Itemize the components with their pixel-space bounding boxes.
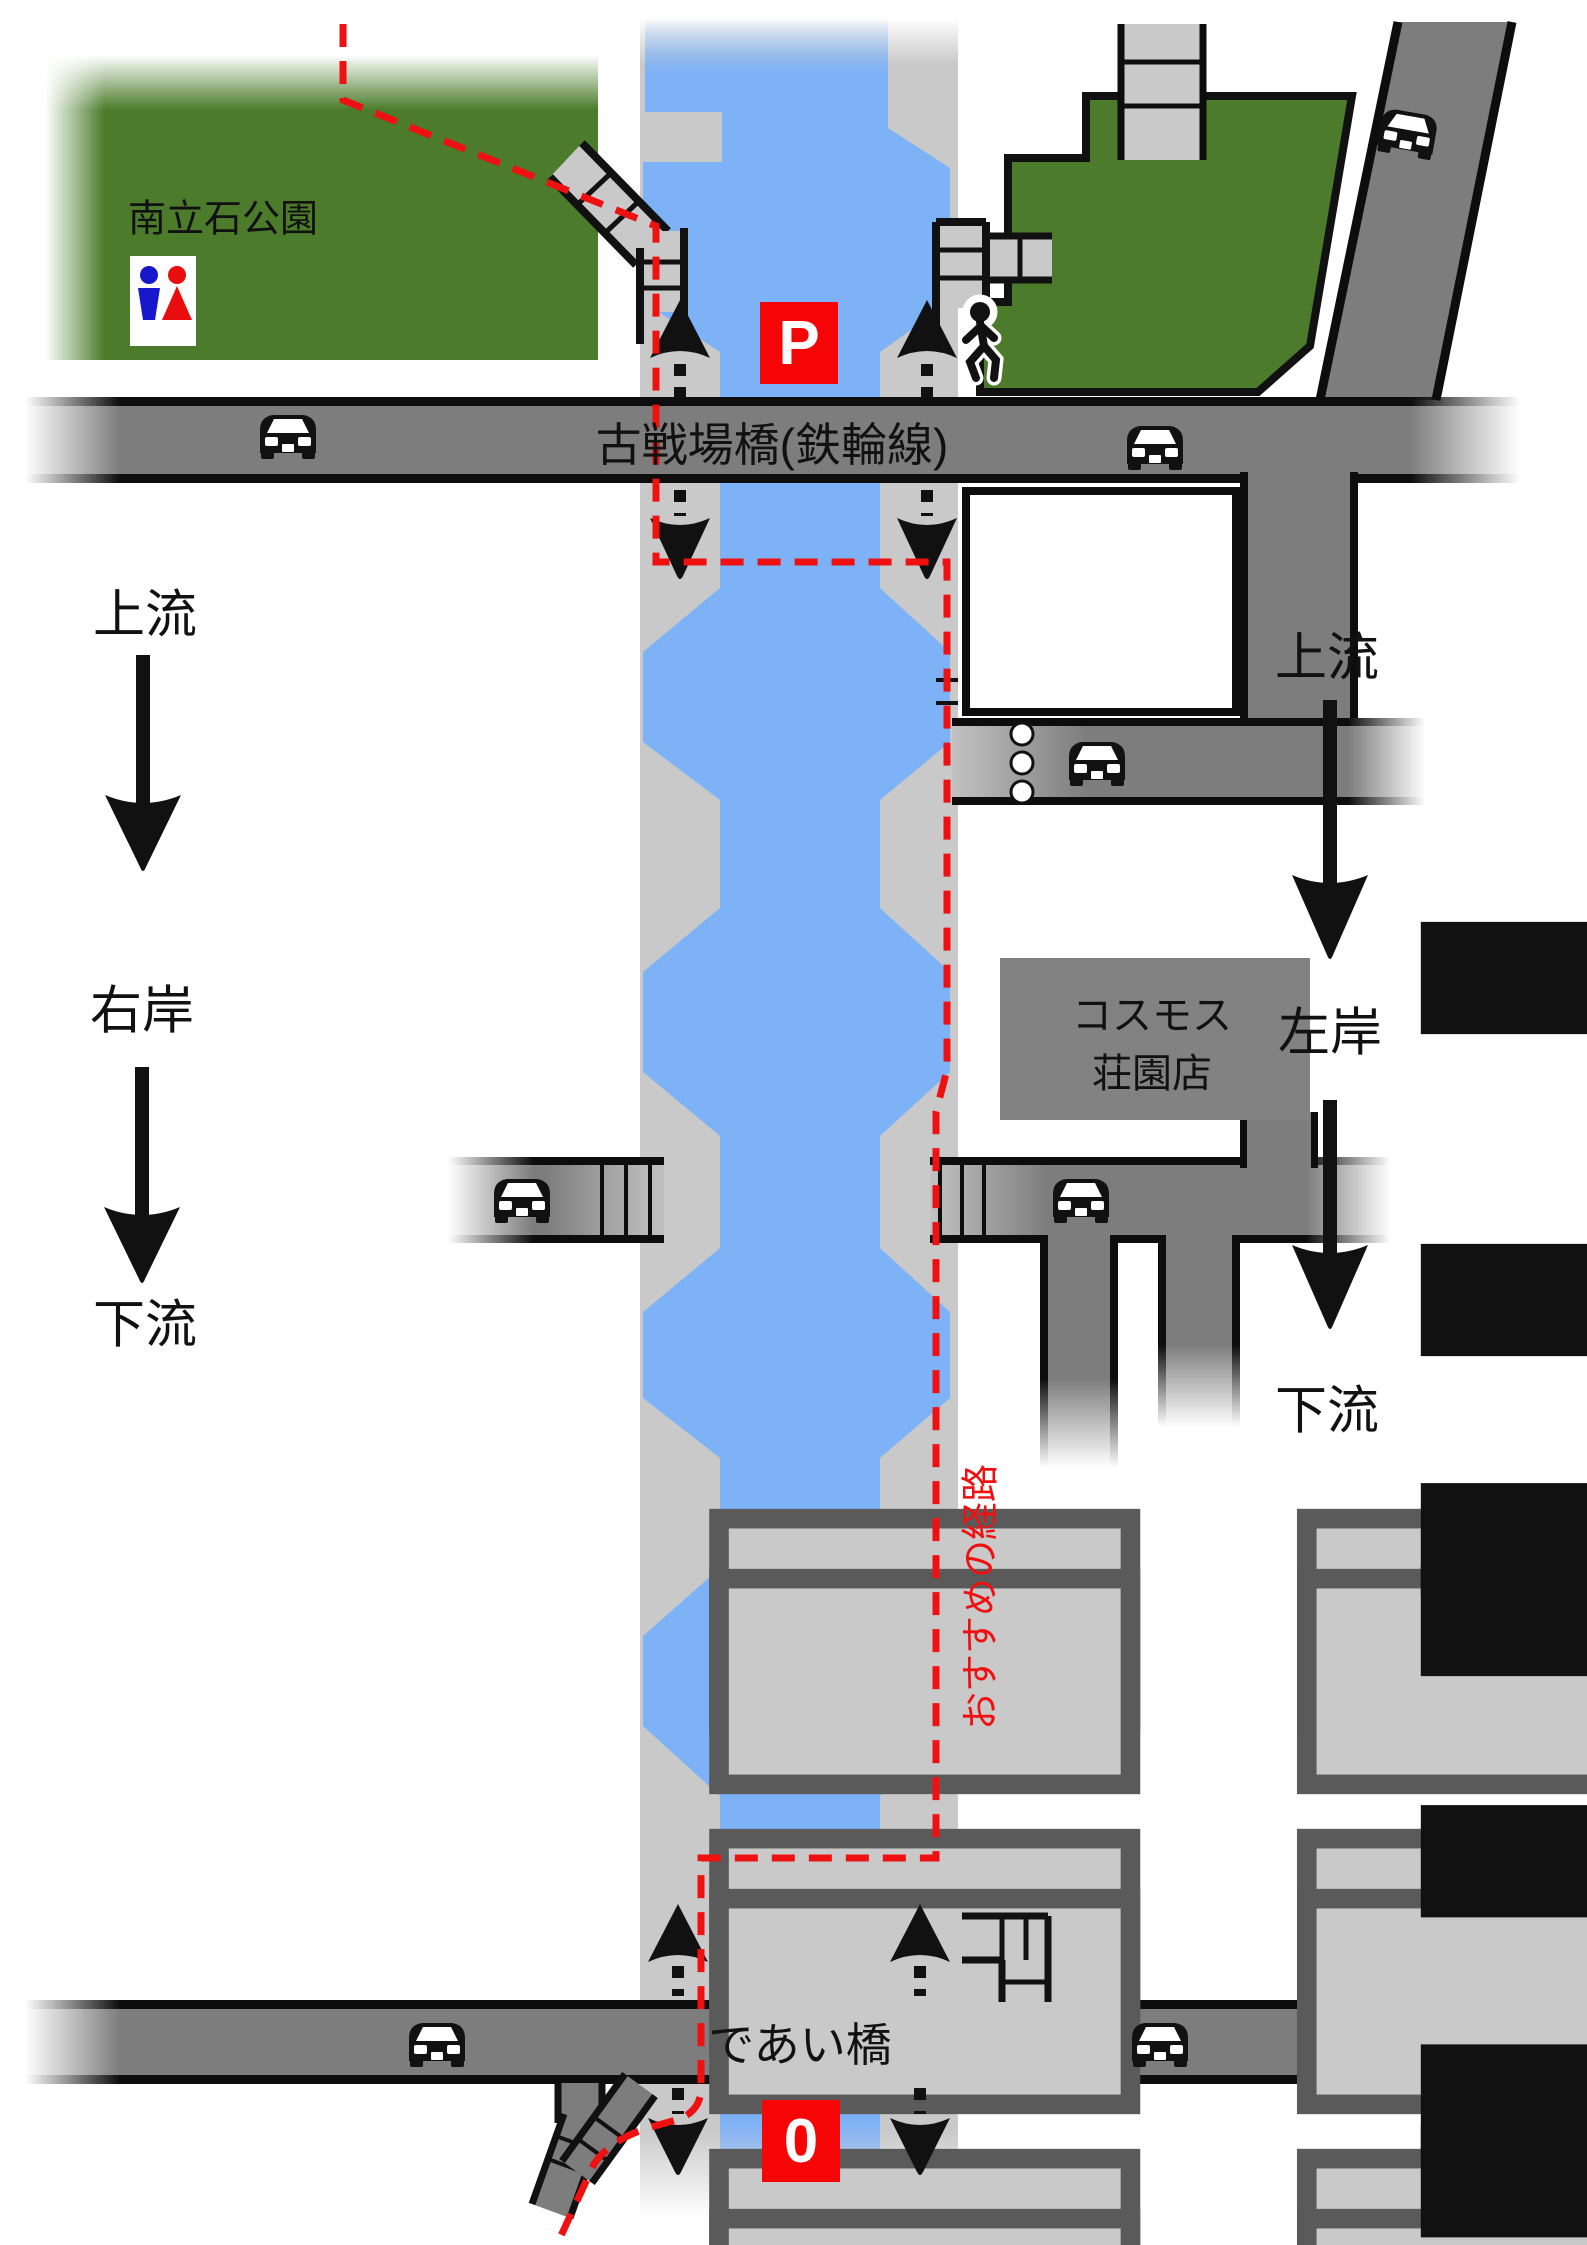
- zero-marker: 0: [762, 2100, 840, 2182]
- car-icon: [1376, 107, 1439, 160]
- right-bank-label: 左岸: [1278, 991, 1382, 1066]
- left-bank-label: 右岸: [90, 969, 194, 1044]
- bridge-top-label: 古戦場橋(鉄輪線): [596, 409, 949, 475]
- parking-marker-label: P: [778, 308, 819, 379]
- left-downstream-label: 下流: [93, 1283, 197, 1358]
- parking-marker: P: [760, 302, 838, 384]
- store-label-line1: コスモス: [1072, 983, 1232, 1041]
- toilet-icon: [130, 256, 196, 346]
- up-arrow-icon: [897, 300, 957, 358]
- car-icon: [1132, 2023, 1188, 2067]
- car-icon: [1053, 1179, 1109, 1223]
- store-label-line2: 荘園店: [1092, 1041, 1212, 1099]
- car-icon: [1069, 742, 1125, 786]
- car-icon: [409, 2023, 465, 2067]
- right-downstream-label: 下流: [1275, 1369, 1379, 1444]
- right-upstream-label: 上流: [1275, 616, 1379, 691]
- route-note-label: おすすめの経路: [950, 1464, 1005, 1730]
- left-upstream-label: 上流: [93, 573, 197, 648]
- riverside-guide-map: P 0 南立石公園 古戦場橋(鉄輪線) であい橋 コスモス 荘園店 おすすめの経…: [0, 0, 1587, 2245]
- stairs-bottom-left: [532, 2074, 655, 2218]
- bridge-bottom-label: であい橋: [708, 2009, 892, 2075]
- stairs-bridge-top-left: [550, 143, 686, 344]
- car-icon: [1127, 426, 1183, 470]
- car-icon: [260, 415, 316, 459]
- crosswalk-stripes: [602, 1165, 984, 1236]
- car-icon: [494, 1179, 550, 1223]
- zero-marker-label: 0: [784, 2106, 818, 2177]
- pedestrian-icon: [966, 302, 996, 378]
- bollard-icons: [1011, 723, 1033, 803]
- park-label: 南立石公園: [128, 188, 318, 243]
